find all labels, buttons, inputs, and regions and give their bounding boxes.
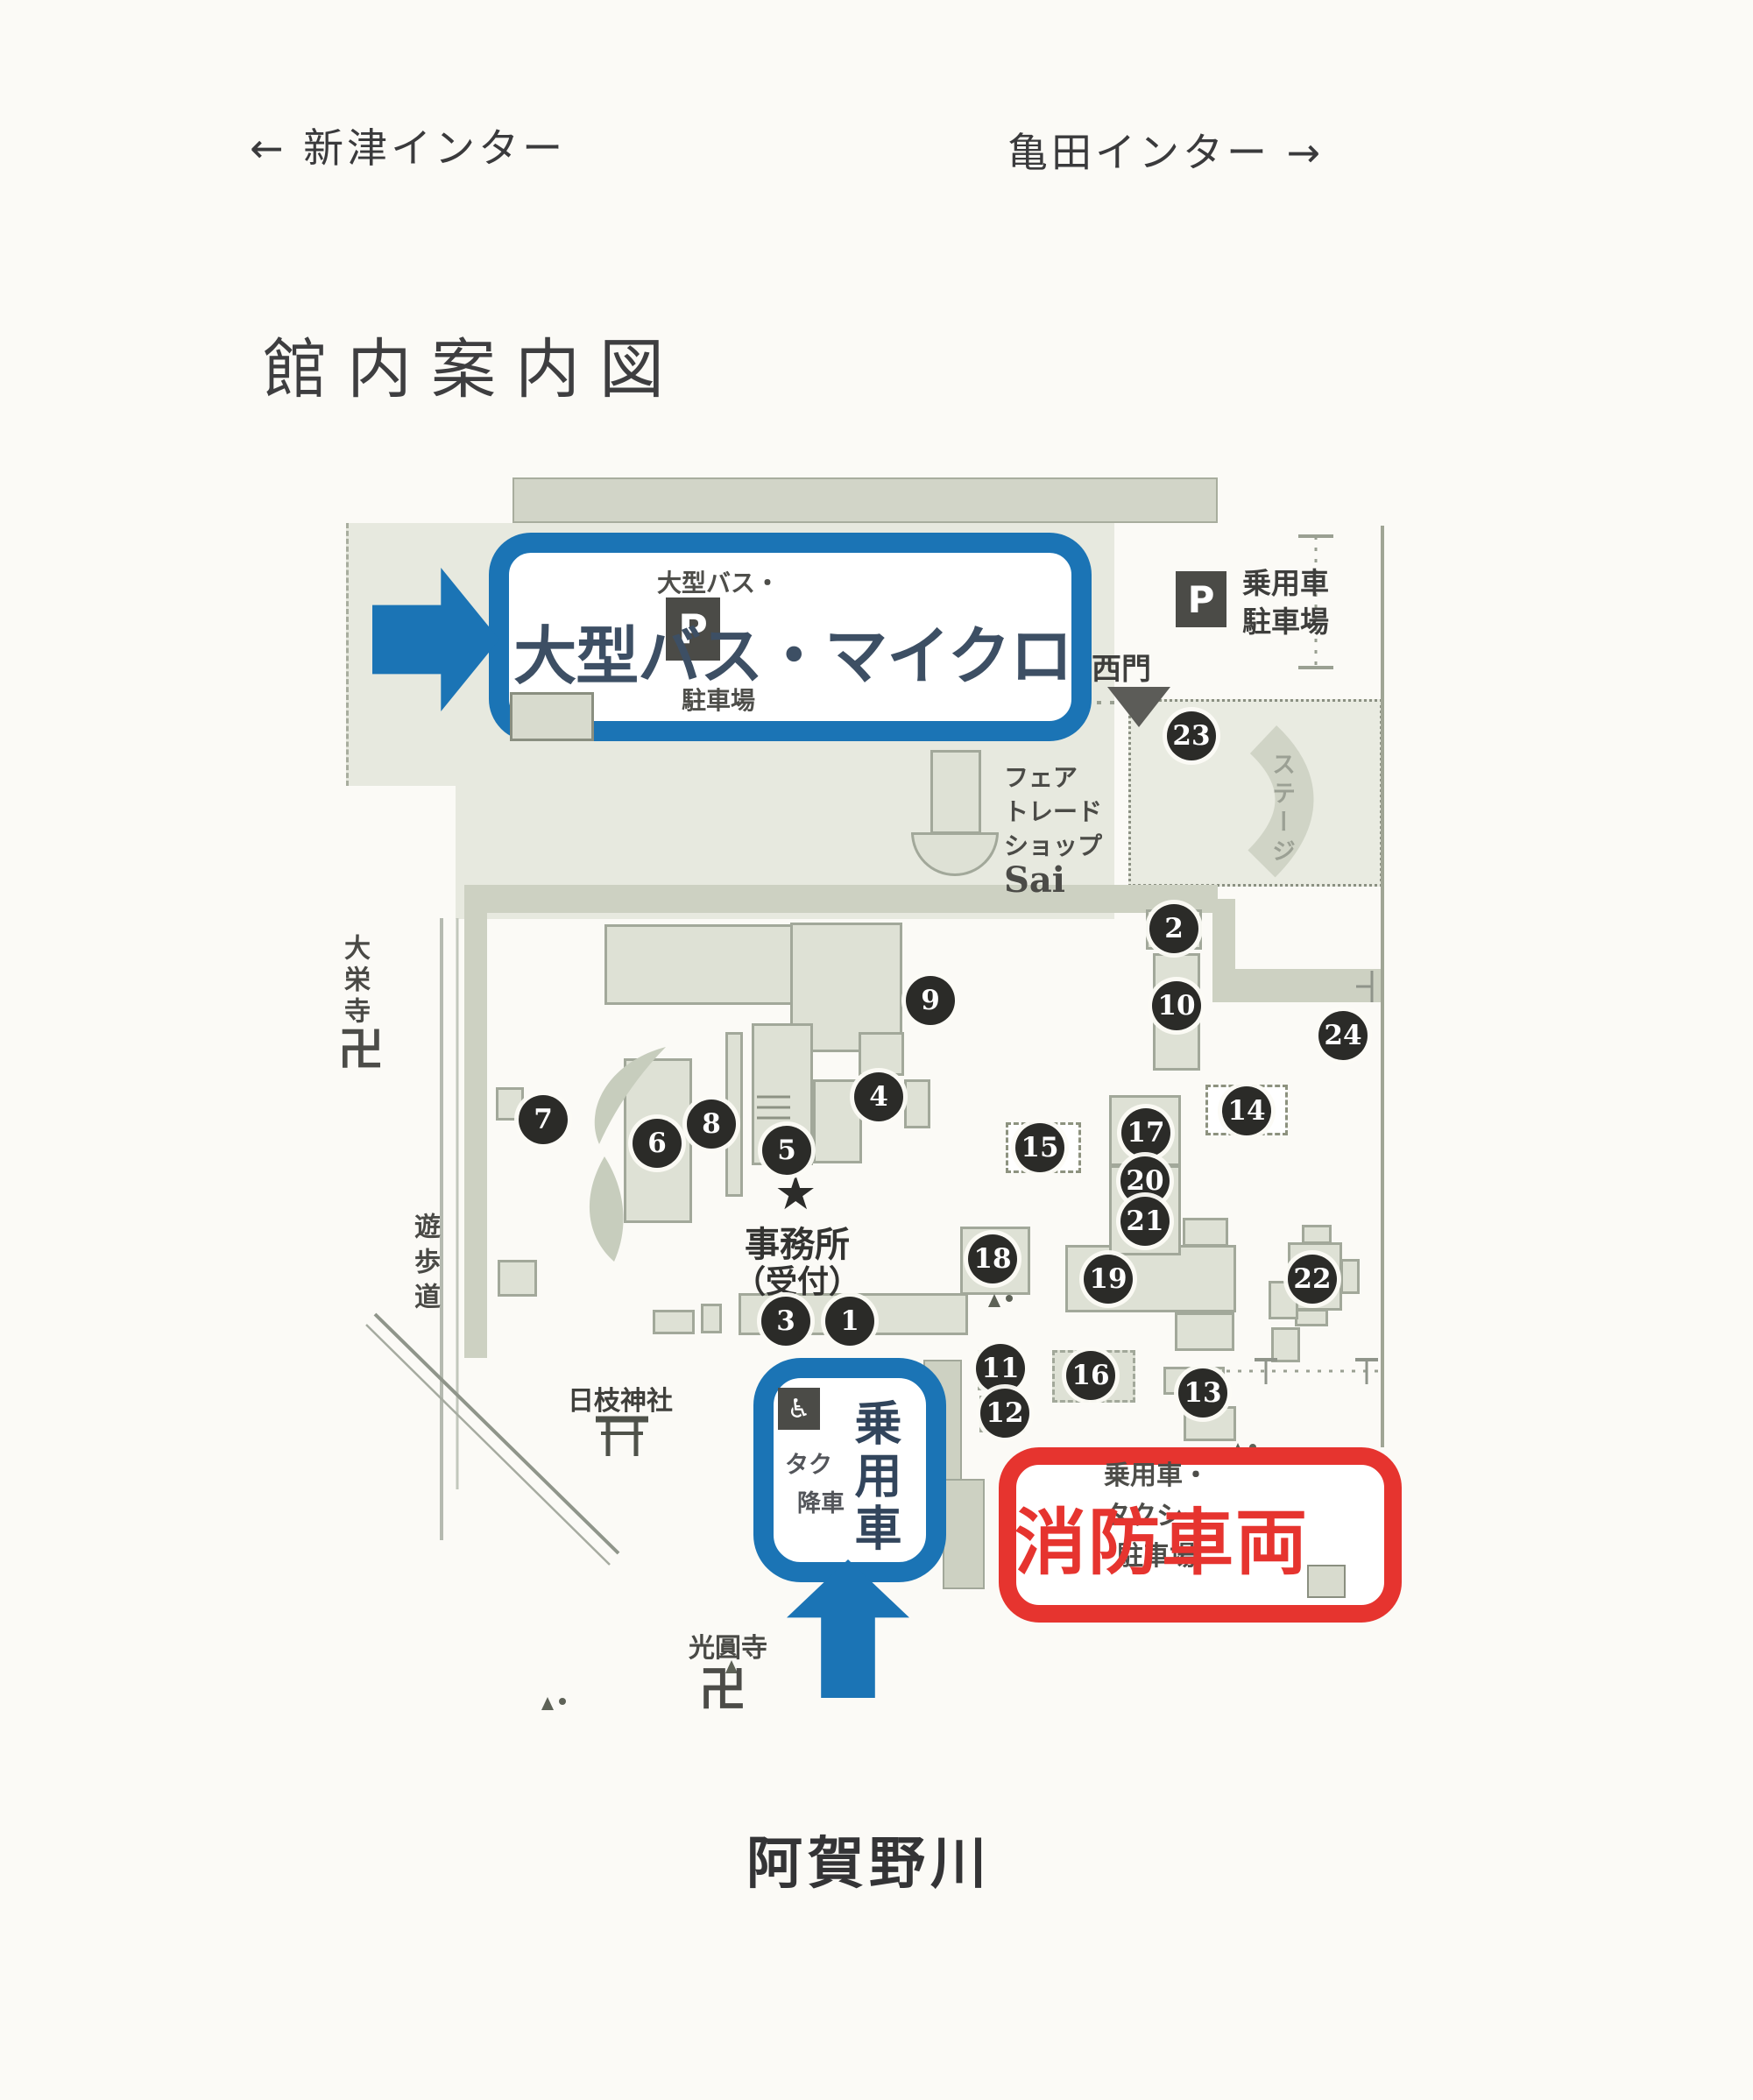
agano-river-label: 阿賀野川 [746, 1819, 992, 1899]
map-marker-6: 6 [633, 1119, 682, 1168]
road [464, 885, 1218, 913]
building-block [1175, 1312, 1234, 1351]
daiei-manji-icon: 卍 [338, 1013, 384, 1078]
parking-p-icon: P [1176, 571, 1226, 627]
building-block [653, 1310, 695, 1334]
building-block-22 [1340, 1259, 1360, 1294]
map-marker-23: 23 [1167, 711, 1216, 760]
road [1212, 969, 1382, 1002]
hie-shrine-label: 日枝神社 [568, 1379, 673, 1418]
map-marker-12: 12 [980, 1389, 1029, 1438]
event-plaza-area [1128, 699, 1382, 887]
bus-parking-small-label1: 大型バス・ [635, 564, 802, 599]
path [943, 1479, 985, 1589]
fair-trade-line3: ショップ [1004, 829, 1102, 863]
fair-trade-line1: フェア [1004, 760, 1102, 795]
building-block [859, 1032, 904, 1076]
map-marker-21: 21 [1120, 1197, 1170, 1246]
map-marker-1: 1 [825, 1297, 874, 1346]
promenade-label: 遊歩道 [405, 1213, 443, 1318]
map-marker-5: 5 [762, 1126, 811, 1175]
building-block [498, 1260, 537, 1297]
fair-trade-shop-label: フェア トレード ショップ Sai [1004, 760, 1102, 897]
building-sai-shop [930, 750, 981, 834]
car-parking-line1: 乗用車 [1242, 564, 1329, 603]
building-block [701, 1304, 722, 1333]
map-marker-8: 8 [687, 1099, 736, 1149]
map-top-structure [512, 477, 1218, 523]
map-marker-18: 18 [968, 1234, 1017, 1283]
building-block [904, 1079, 930, 1128]
fire-annotation-label: 消防車両 [1014, 1484, 1309, 1588]
direction-kameda-interchange: 亀田インター → [1007, 121, 1324, 179]
map-marker-13: 13 [1178, 1368, 1227, 1418]
wheelchair-icon: ♿ [778, 1388, 820, 1430]
map-marker-22: 22 [1288, 1255, 1337, 1304]
map-marker-19: 19 [1084, 1255, 1133, 1304]
map-marker-4: 4 [854, 1072, 903, 1121]
koen-manji-icon: 卍 [699, 1651, 746, 1720]
scanned-facility-map-page: ← 新津インター 亀田インター → 館内案内図 [0, 0, 1753, 2100]
building-block [1271, 1327, 1300, 1362]
car-parking-label: 乗用車 駐車場 [1242, 564, 1329, 641]
map-marker-15: 15 [1015, 1123, 1064, 1172]
building-block-22 [1295, 1309, 1328, 1326]
map-marker-17: 17 [1121, 1108, 1170, 1157]
building-block-22 [1302, 1225, 1332, 1244]
fair-trade-line2: トレード [1004, 795, 1102, 829]
map-marker-16: 16 [1066, 1351, 1115, 1400]
fair-trade-sai: Sai [1004, 863, 1102, 897]
map-marker-24: 24 [1318, 1011, 1368, 1060]
west-gate-arrow-icon [1107, 687, 1170, 727]
office-label-line2: （受付） [701, 1256, 894, 1302]
map-marker-10: 10 [1152, 981, 1201, 1030]
bus-annotation-label: 大型バス・マイクロ [504, 605, 1082, 696]
bus-stop-rect [510, 692, 594, 741]
car-annotation-label: 乗用車 [839, 1398, 908, 1556]
page-title: 館内案内図 [263, 317, 683, 411]
taxi-dropoff-label2: 降車 [797, 1484, 845, 1518]
stage-label: ステージ [1264, 752, 1298, 867]
fire-box-rect [1307, 1565, 1346, 1598]
map-marker-14: 14 [1222, 1086, 1271, 1135]
car-parking-line2: 駐車場 [1242, 603, 1329, 641]
torii-icon [596, 1419, 648, 1456]
map-marker-9: 9 [906, 976, 955, 1025]
map-marker-3: 3 [761, 1297, 810, 1346]
road [464, 885, 487, 1358]
map-marker-11: 11 [976, 1344, 1025, 1393]
map-marker-2: 2 [1149, 904, 1198, 953]
direction-niitsu-interchange: ← 新津インター [250, 117, 566, 174]
taxi-dropoff-label1: タク [785, 1446, 832, 1480]
map-marker-7: 7 [519, 1095, 568, 1144]
west-gate-label: 西門 [1092, 645, 1151, 688]
building-block [1183, 1218, 1228, 1247]
